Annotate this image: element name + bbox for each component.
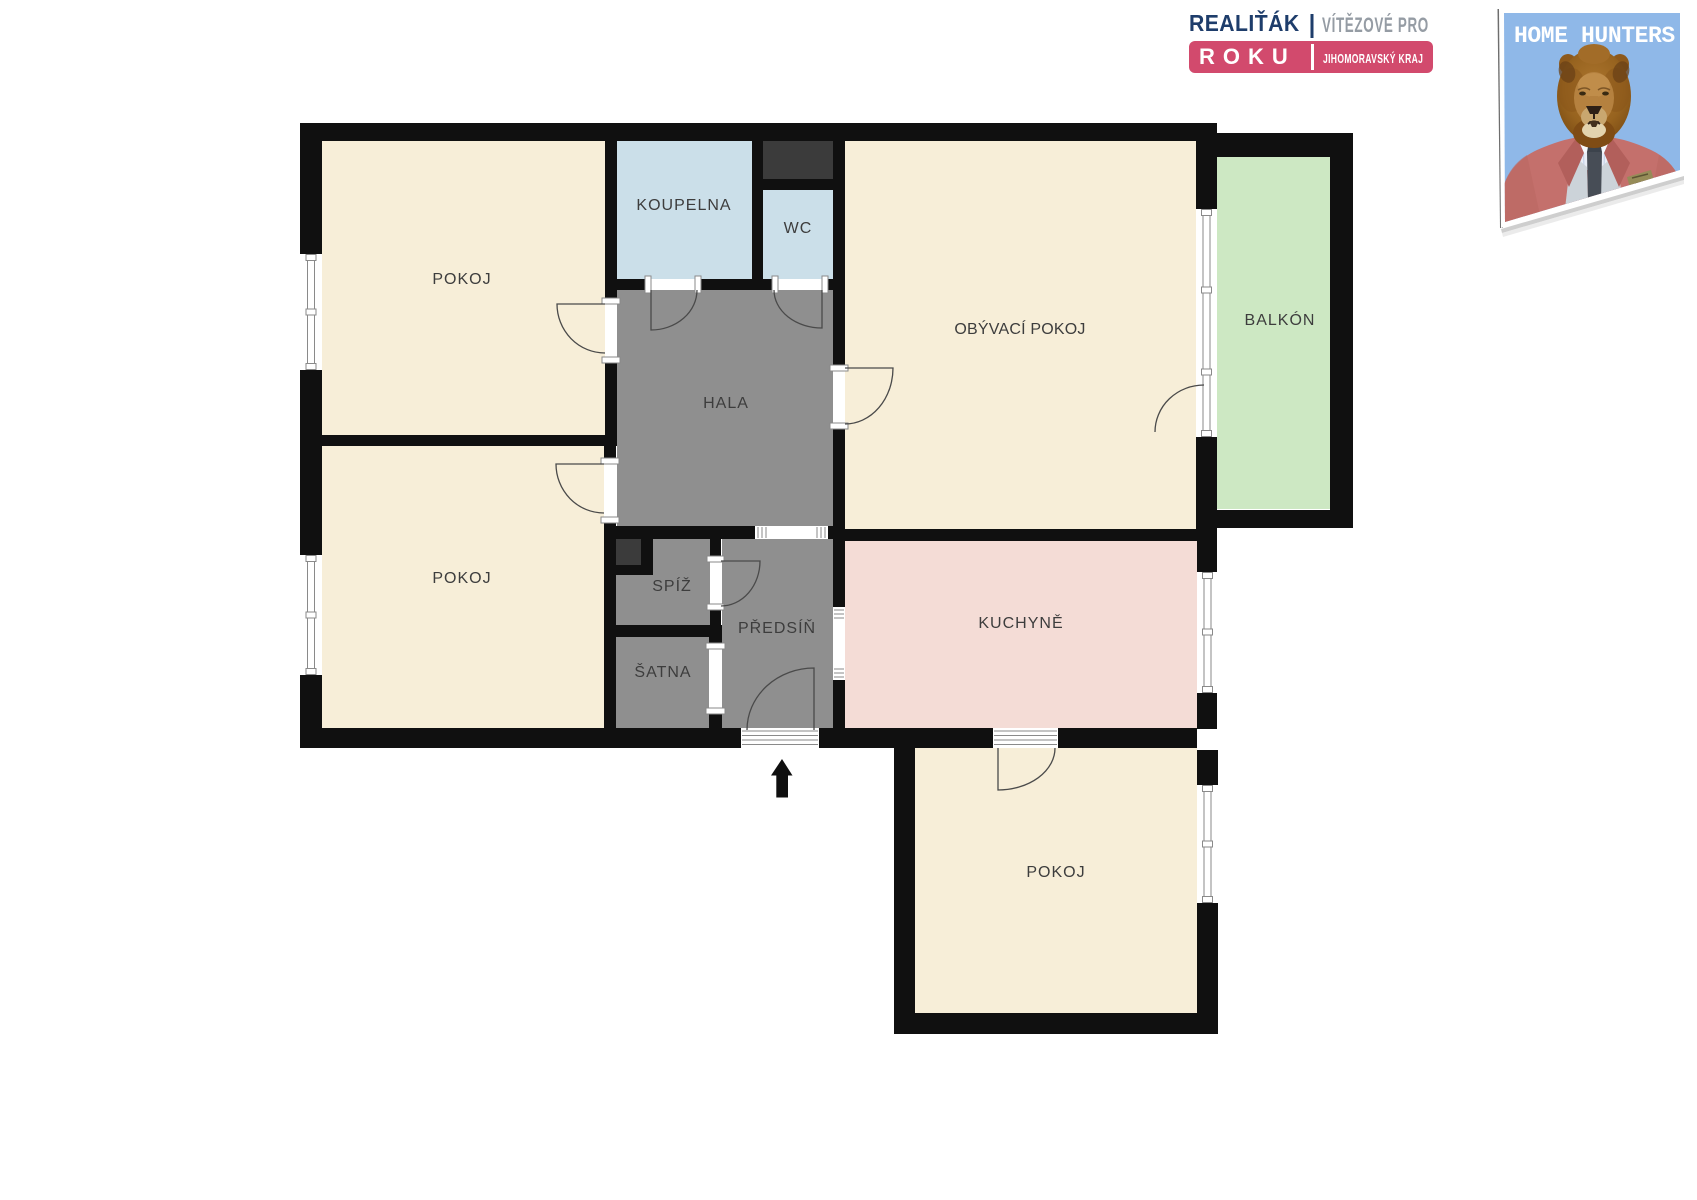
svg-text:HOME HUNTERS: HOME HUNTERS (1514, 23, 1675, 49)
svg-text:ROKU: ROKU (1199, 44, 1296, 69)
svg-text:PŘEDSÍŇ: PŘEDSÍŇ (738, 618, 816, 637)
svg-text:POKOJ: POKOJ (1026, 864, 1085, 881)
svg-text:SPÍŽ: SPÍŽ (652, 576, 692, 595)
svg-text:KOUPELNA: KOUPELNA (636, 197, 731, 214)
svg-text:POKOJ: POKOJ (432, 271, 491, 288)
svg-text:KUCHYNĚ: KUCHYNĚ (978, 613, 1063, 632)
svg-text:POKOJ: POKOJ (432, 570, 491, 587)
svg-text:BALKÓN: BALKÓN (1245, 310, 1316, 329)
svg-text:REALIŤÁK: REALIŤÁK (1189, 10, 1300, 36)
svg-text:OBÝVACÍ POKOJ: OBÝVACÍ POKOJ (954, 319, 1085, 338)
svg-text:JIHOMORAVSKÝ KRAJ: JIHOMORAVSKÝ KRAJ (1323, 51, 1423, 66)
svg-text:ŠATNA: ŠATNA (634, 662, 691, 681)
svg-text:VÍTĚZOVÉ PRO: VÍTĚZOVÉ PRO (1322, 12, 1429, 37)
svg-text:HALA: HALA (703, 395, 749, 412)
svg-text:WC: WC (784, 220, 813, 237)
